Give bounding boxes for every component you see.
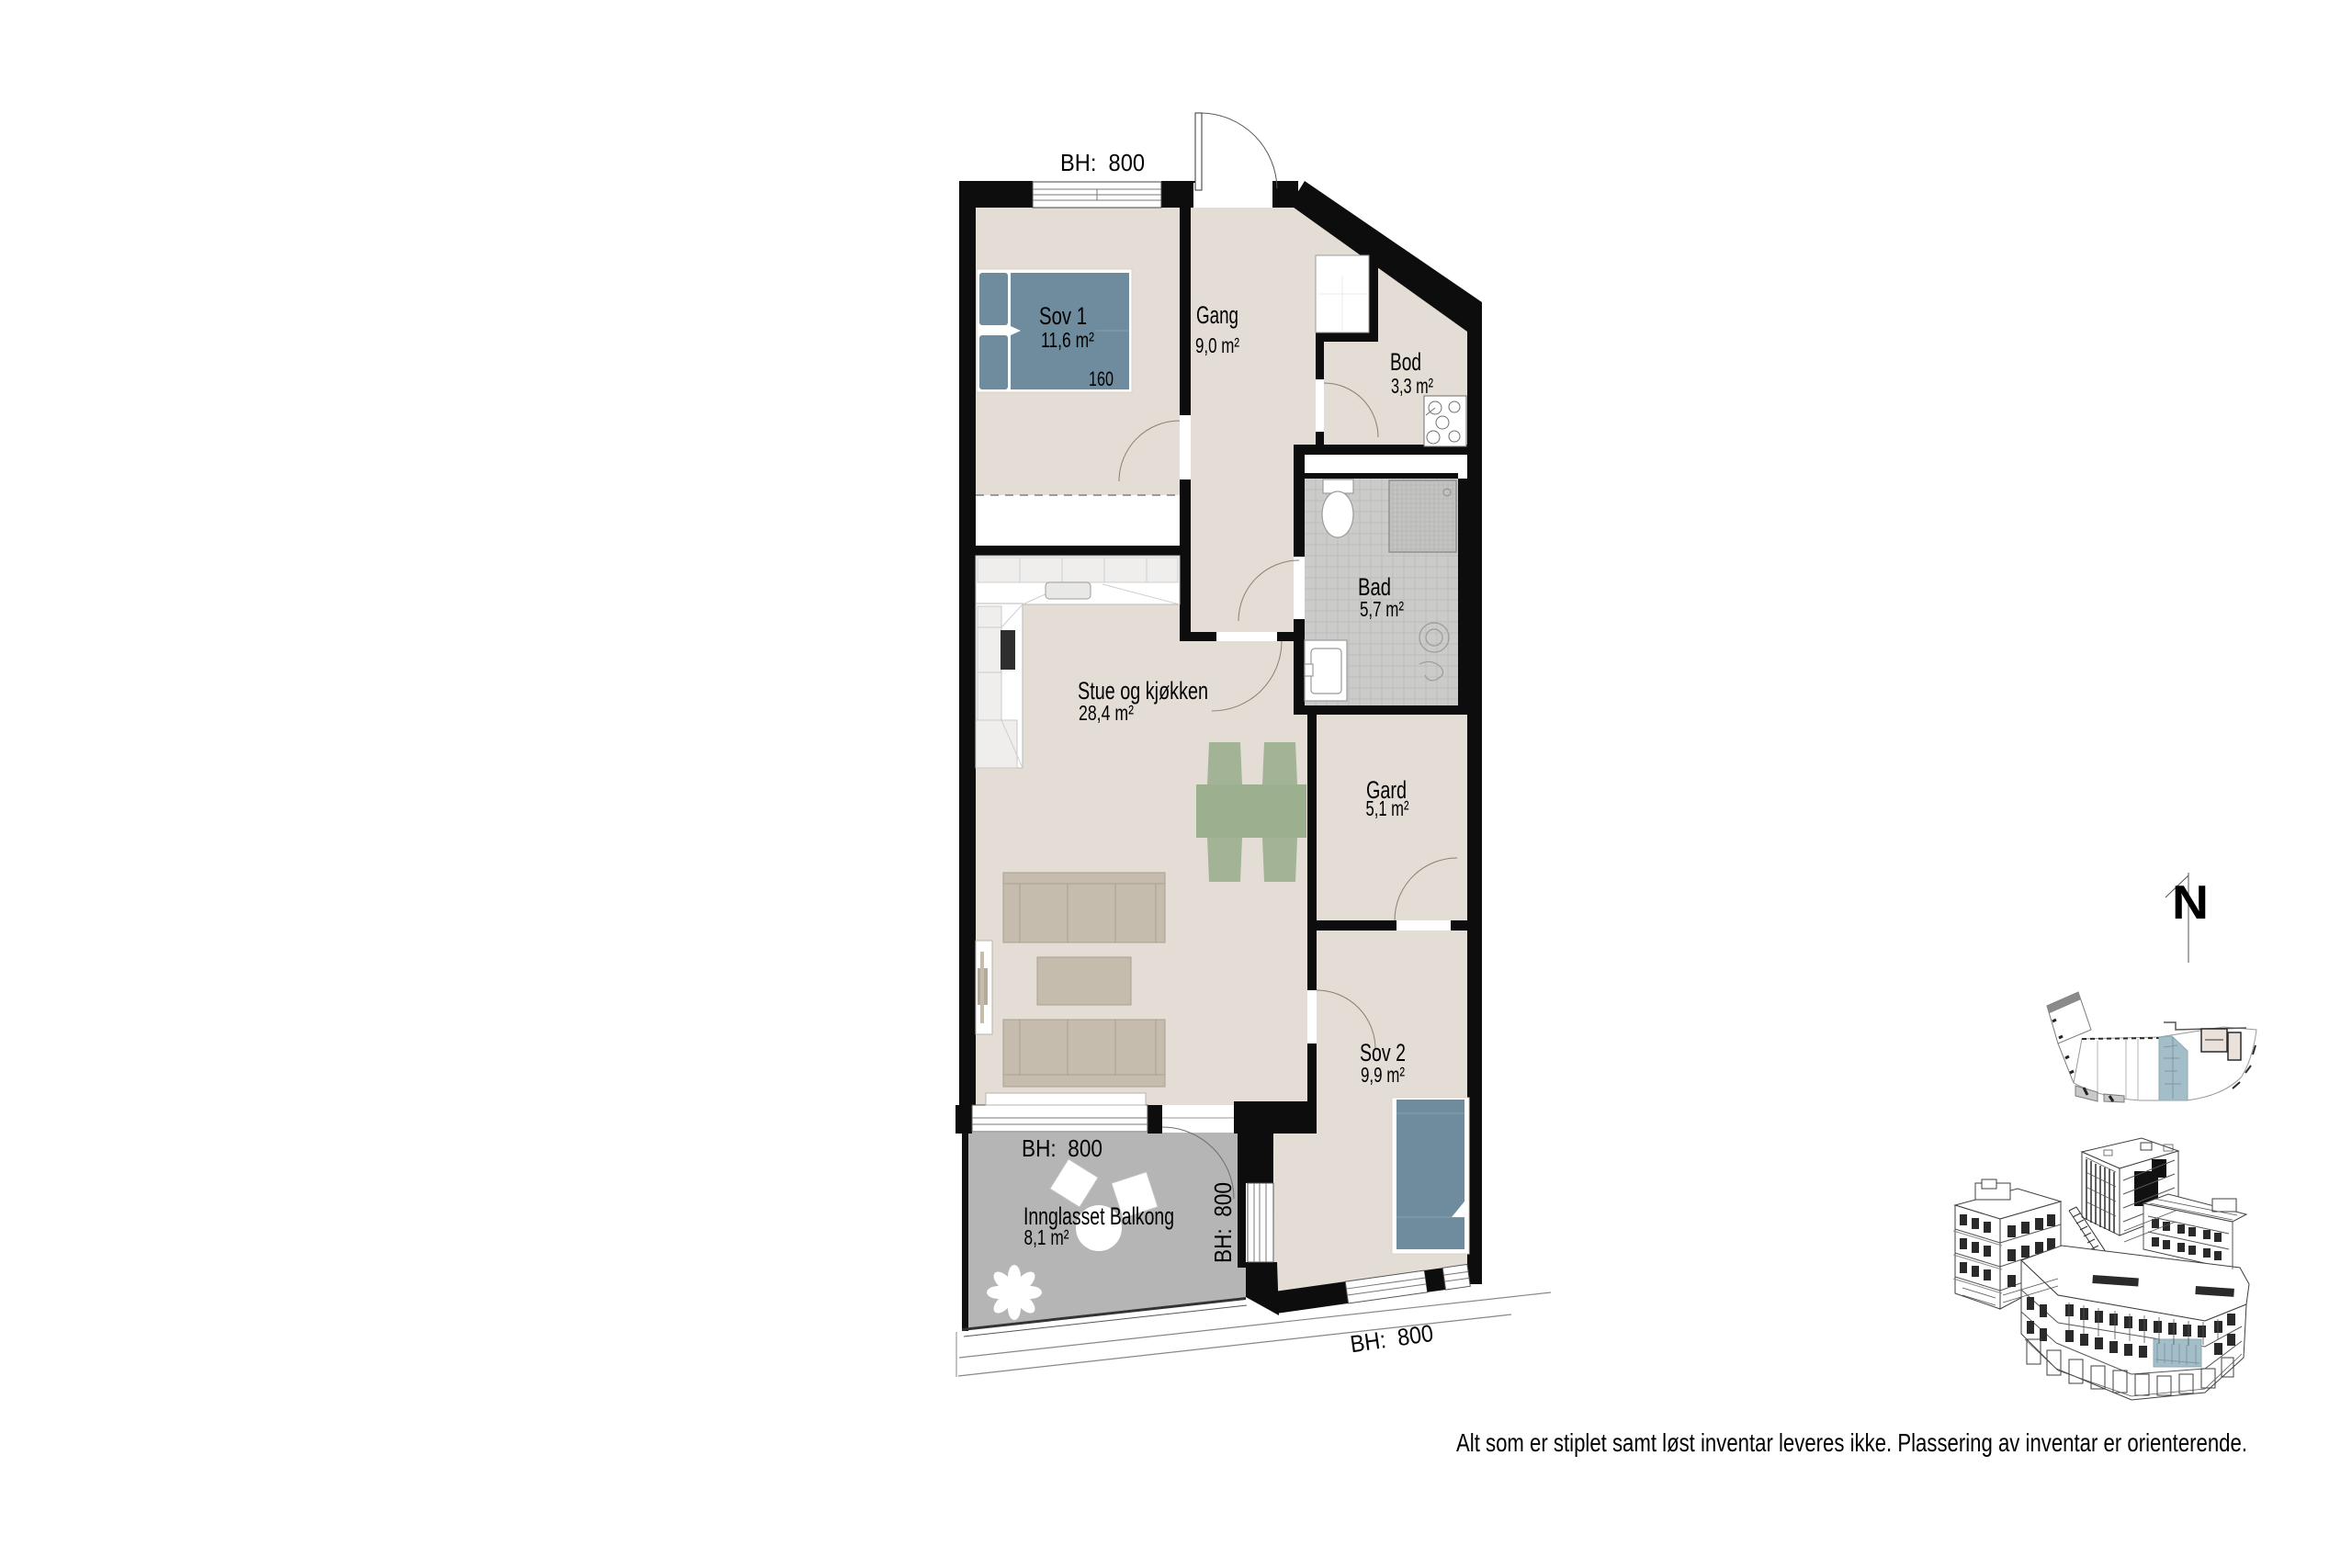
svg-text:N: N [2172,876,2209,930]
svg-text:9,0 m²: 9,0 m² [1195,333,1239,357]
svg-text:BH: 800: BH: 800 [1022,1134,1102,1162]
svg-text:Alt som er stiplet samt løst i: Alt som er stiplet samt løst inventar le… [1456,1428,2247,1457]
svg-text:3,3 m²: 3,3 m² [1391,374,1433,398]
svg-text:28,4 m²: 28,4 m² [1079,701,1134,725]
svg-text:5,1 m²: 5,1 m² [1366,796,1409,820]
svg-text:Sov 1: Sov 1 [1039,302,1087,330]
svg-text:Bod: Bod [1390,348,1421,376]
svg-text:Gang: Gang [1196,301,1238,329]
svg-text:11,6 m²: 11,6 m² [1041,328,1094,352]
svg-text:BH: 800: BH: 800 [1060,149,1145,176]
svg-text:BH: 800: BH: 800 [1209,1182,1237,1263]
svg-text:8,1 m²: 8,1 m² [1024,1225,1069,1249]
svg-text:160: 160 [1089,367,1114,390]
svg-text:9,9 m²: 9,9 m² [1361,1063,1405,1087]
svg-text:5,7 m²: 5,7 m² [1360,597,1404,621]
